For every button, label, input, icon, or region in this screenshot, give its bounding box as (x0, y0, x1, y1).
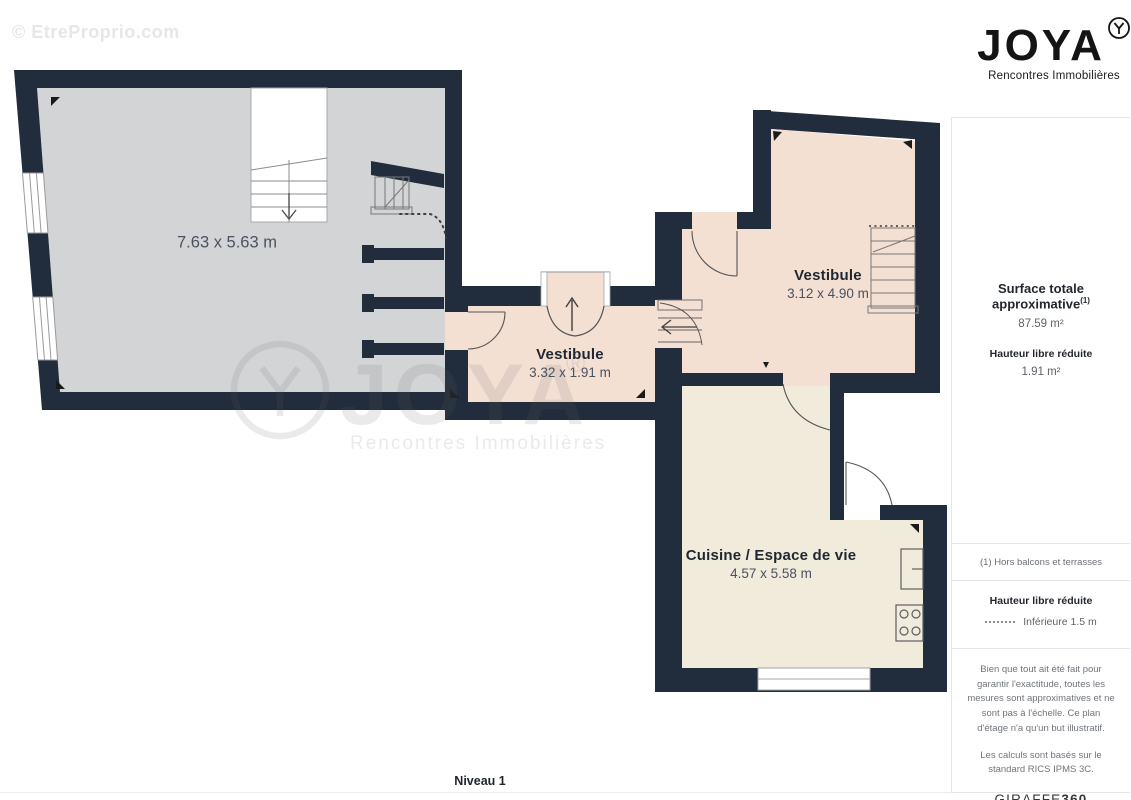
reduced-height-title: Hauteur libre réduite (952, 348, 1130, 360)
label-vestibule-center: Vestibule 3.32 x 1.91 m (529, 346, 611, 380)
footnote-text: (1) Hors balcons et terrasses (980, 557, 1102, 568)
svg-text:Rencontres Immobilières: Rencontres Immobilières (350, 433, 606, 454)
vestibule-center-name: Vestibule (529, 346, 611, 363)
legend-title: Hauteur libre réduite (952, 595, 1130, 607)
footnote-card: (1) Hors balcons et terrasses (951, 543, 1130, 581)
floor-plan-drawing: JOYA ® Rencontres Immobilières (0, 0, 950, 800)
joya-logo: JOYA Rencontres Immobilières (951, 24, 1131, 82)
joya-logo-icon (1107, 16, 1131, 45)
door-kitchen-notch (846, 462, 892, 505)
vestibule-center-dims: 3.32 x 1.91 m (529, 365, 611, 380)
staircase-main (251, 88, 327, 222)
disclaimer-card: Bien que tout ait été fait pour garantir… (951, 648, 1130, 793)
living-dims: 7.63 x 5.63 m (177, 234, 277, 253)
surface-title-text: Surface totale approximative (992, 281, 1084, 311)
kitchen-name: Cuisine / Espace de vie (686, 547, 857, 564)
label-vestibule-right: Vestibule 3.12 x 4.90 m (787, 267, 869, 301)
reduced-height-value: 1.91 m² (952, 366, 1130, 378)
joya-logo-text: JOYA (977, 24, 1105, 68)
disclaimer-2: Les calculs sont basés sur le standard R… (952, 749, 1130, 778)
joya-logo-tagline: Rencontres Immobilières (951, 70, 1131, 82)
label-kitchen: Cuisine / Espace de vie 4.57 x 5.58 m (686, 547, 857, 581)
vestibule-right-name: Vestibule (787, 267, 869, 284)
legend-label: Inférieure 1.5 m (1023, 616, 1097, 628)
kitchen-dims: 4.57 x 5.58 m (686, 566, 857, 581)
legend-card: Hauteur libre réduite Inférieure 1.5 m (951, 580, 1130, 649)
floorplan-page: © EtreProprio.com (0, 0, 1131, 800)
surface-value: 87.59 m² (952, 318, 1130, 330)
vestibule-right-dims: 3.12 x 4.90 m (787, 286, 869, 301)
window-kitchen (758, 668, 870, 690)
sidebar: JOYA Rencontres Immobilières Surface tot… (951, 0, 1131, 800)
surface-title: Surface totale approximative(1) (952, 281, 1130, 311)
giraffe-text: GIRAFFE (994, 792, 1061, 800)
surface-footnote-ref: (1) (1080, 296, 1090, 305)
dotted-line-icon (985, 621, 1015, 623)
level-label: Niveau 1 (454, 774, 505, 788)
giraffe360-brand: GIRAFFE360 (952, 792, 1130, 800)
surface-card: Surface totale approximative(1) 87.59 m²… (951, 117, 1130, 544)
giraffe-360-text: 360 (1061, 792, 1087, 800)
label-living-room: 7.63 x 5.63 m (177, 232, 277, 253)
disclaimer-1: Bien que tout ait été fait pour garantir… (952, 663, 1130, 737)
